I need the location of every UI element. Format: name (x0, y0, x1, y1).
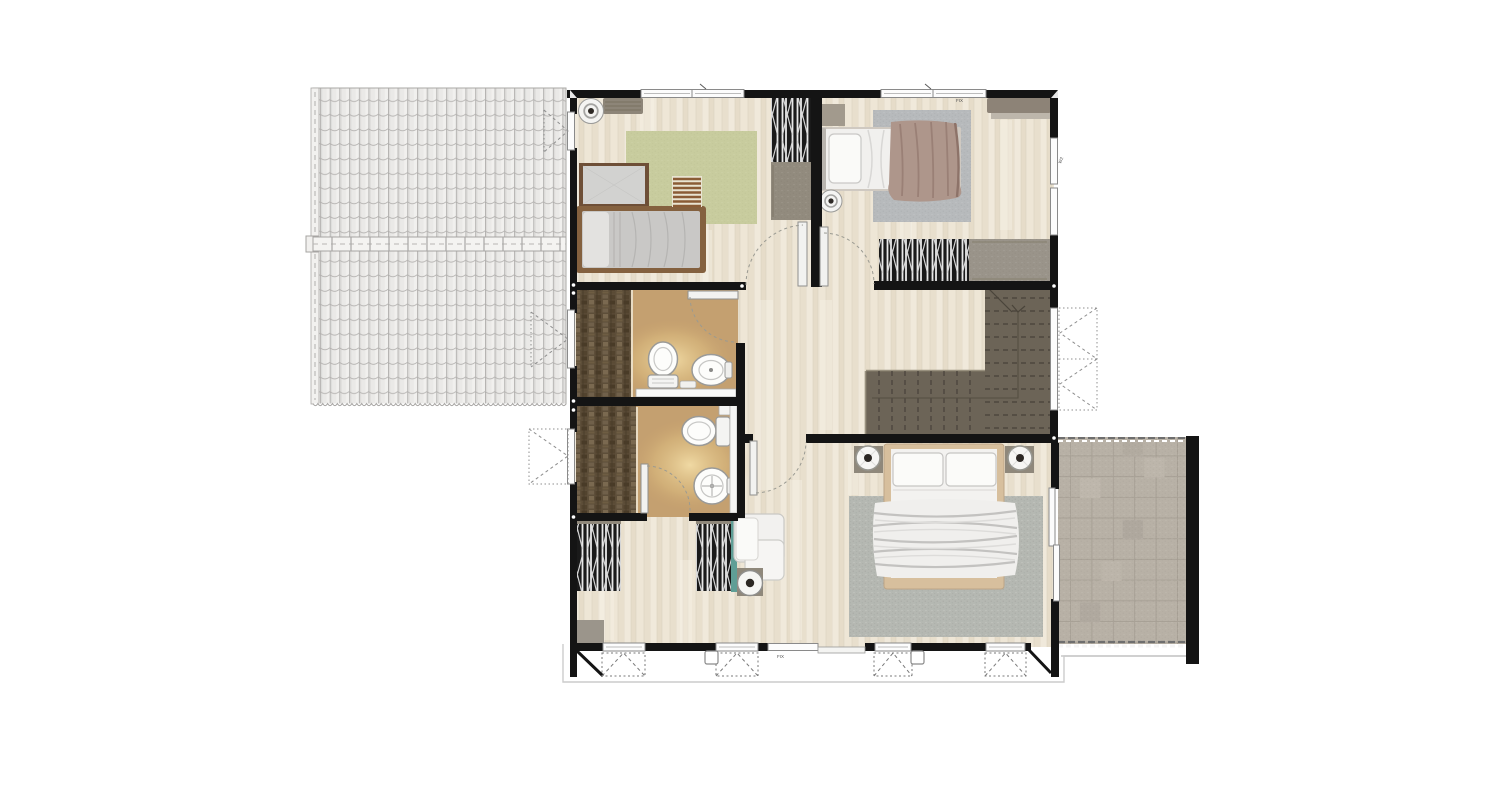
svg-text:FIX: FIX (777, 654, 784, 659)
svg-text:FIX: FIX (956, 98, 963, 103)
